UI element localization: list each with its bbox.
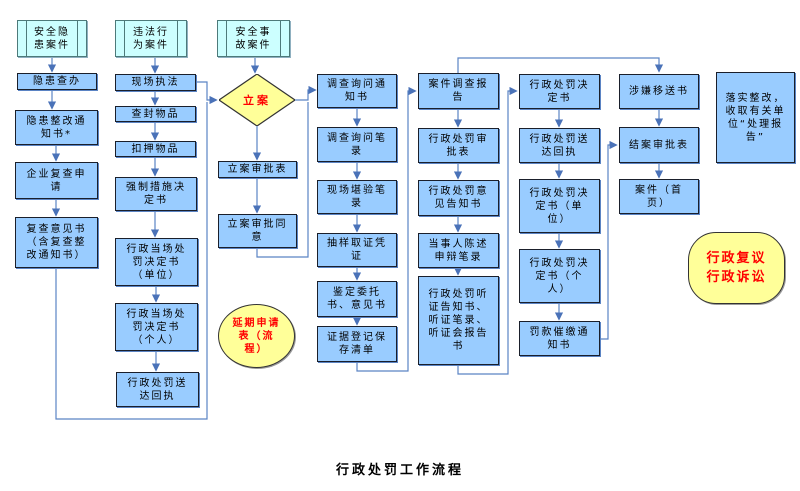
node-penalty-decision-unit: 行政处罚决定书（单位） [519,179,600,233]
node-appraisal-letters-label: 鉴定委托书、意见书 [325,286,389,312]
node-penalty-decision-individual-label: 行政处罚决定书（个人） [527,257,592,296]
node-detain-goods: 扣押物品 [115,141,196,157]
node-suspected-transfer-letter: 涉嫌移送书 [619,74,699,109]
node-hazard-investigation: 隐患查办 [17,73,97,90]
node-accident-case-label: 安全事故案件 [231,26,276,52]
node-penalty-opinion-notice-label: 行政处罚意见告知书 [426,185,491,211]
node-fine-reminder-notice-label: 罚款催缴通知书 [527,326,592,352]
node-penalty-delivery-receipt-left-label: 行政处罚送达回执 [124,377,191,403]
node-evidence-register-list: 证据登记保存清单 [317,326,397,362]
node-extension-application-label: 延期申请表（流程） [231,317,282,356]
node-case-homepage: 案件（首页） [619,179,699,214]
node-case-closing-approval: 结案审批表 [619,127,699,163]
node-compulsory-measure-decision-label: 强制措施决定书 [123,181,189,207]
node-hazard-investigation-label: 隐患查办 [33,75,81,88]
node-appraisal-letters: 鉴定委托书、意见书 [317,281,397,317]
node-safety-hazard-case: 安全隐患案件 [17,20,87,57]
node-case-investigation-report-label: 案件调查报告 [426,78,491,104]
node-inquiry-record: 调查询问笔录 [317,127,397,162]
node-penalty-decision-unit-label: 行政处罚决定书（单位） [527,187,592,226]
node-filing-approval-form-label: 立案审批表 [228,163,288,176]
node-extension-application: 延期申请表（流程） [218,304,295,368]
node-onspot-penalty-decision-unit: 行政当场处罚决定书（单位） [115,238,198,286]
node-penalty-decision-individual: 行政处罚决定书（个人） [519,249,600,303]
node-inquiry-notice: 调查询问通知书 [317,74,397,108]
node-detain-goods-label: 扣押物品 [132,143,180,156]
node-review-opinion: 复查意见书（含复查整改通知书） [15,217,98,268]
node-hearing-documents-label: 行政处罚听证告知书、听证笔录、听证会报告书 [426,288,491,353]
node-onspot-penalty-decision-individual: 行政当场处罚决定书（个人） [115,303,198,351]
node-seal-goods-label: 查封物品 [132,108,180,121]
node-suspected-transfer-letter-label: 涉嫌移送书 [629,85,689,98]
node-case-filing-decision: 立案 [219,74,295,126]
node-penalty-approval-form: 行政处罚审批表 [418,128,499,163]
node-case-closing-approval-label: 结案审批表 [629,139,689,152]
node-filing-approval-agree-label: 立案审批同意 [226,218,289,244]
node-reconsideration-litigation: 行政复议行政诉讼 [688,232,785,304]
node-illegal-act-case: 违法行为案件 [115,20,187,57]
node-hazard-rectification-notice: 隐患整改通知书* [15,110,98,145]
node-party-statement-record: 当事人陈述申辩笔录 [418,233,499,268]
node-safety-hazard-case-label: 安全隐患案件 [31,26,73,52]
node-site-survey-record-label: 现场堪验笔录 [325,184,389,210]
node-penalty-delivery-receipt-right: 行政处罚送达回执 [519,128,600,163]
node-penalty-decision: 行政处罚决定书 [519,74,600,109]
node-review-opinion-label: 复查意见书（含复查整改通知书） [23,223,90,262]
node-site-survey-record: 现场堪验笔录 [317,180,397,214]
node-inquiry-notice-label: 调查询问通知书 [325,78,389,104]
node-accident-case: 安全事故案件 [217,20,290,57]
node-penalty-approval-form-label: 行政处罚审批表 [426,133,491,159]
node-reconsideration-litigation-label: 行政复议行政诉讼 [703,249,770,287]
node-case-homepage-label: 案件（首页） [627,184,691,210]
node-penalty-delivery-receipt-left: 行政处罚送达回执 [116,372,199,407]
node-onspot-penalty-decision-individual-label: 行政当场处罚决定书（个人） [123,308,190,347]
node-penalty-opinion-notice: 行政处罚意见告知书 [418,180,499,216]
node-case-investigation-report: 案件调查报告 [418,73,499,109]
node-illegal-act-case-label: 违法行为案件 [129,26,173,52]
node-seal-goods: 查封物品 [115,106,196,122]
node-filing-approval-agree: 立案审批同意 [218,214,297,248]
node-party-statement-record-label: 当事人陈述申辩笔录 [426,238,491,264]
page-title: 行政处罚工作流程 [0,459,800,478]
node-compulsory-measure-decision: 强制措施决定书 [115,177,197,211]
node-filing-approval-form: 立案审批表 [218,161,297,178]
node-implement-rectification-label: 落实整改，收取有关单位“处理报告” [724,92,787,144]
node-case-filing-label: 立案 [243,94,271,107]
node-enterprise-review-application-label: 企业复查申请 [23,168,90,194]
node-evidence-register-list-label: 证据登记保存清单 [325,331,389,357]
node-fine-reminder-notice: 罚款催缴通知书 [519,321,600,356]
flowchart-canvas: 安全隐患案件 违法行为案件 安全事故案件 隐患查办 隐患整改通知书* 企业复查申… [0,0,800,491]
node-sampling-voucher-label: 抽样取证凭证 [325,237,389,263]
node-penalty-delivery-receipt-right-label: 行政处罚送达回执 [527,133,592,159]
node-penalty-decision-label: 行政处罚决定书 [527,79,592,105]
node-implement-rectification: 落实整改，收取有关单位“处理报告” [716,72,795,163]
node-onsite-enforcement: 现场执法 [115,74,196,91]
node-hazard-rectification-notice-label: 隐患整改通知书* [23,115,90,141]
node-hearing-documents: 行政处罚听证告知书、听证笔录、听证会报告书 [418,276,499,365]
node-enterprise-review-application: 企业复查申请 [15,162,98,199]
node-onsite-enforcement-label: 现场执法 [132,76,180,89]
node-onspot-penalty-decision-unit-label: 行政当场处罚决定书（单位） [123,243,190,282]
node-inquiry-record-label: 调查询问笔录 [325,132,389,158]
node-sampling-voucher: 抽样取证凭证 [317,233,397,267]
